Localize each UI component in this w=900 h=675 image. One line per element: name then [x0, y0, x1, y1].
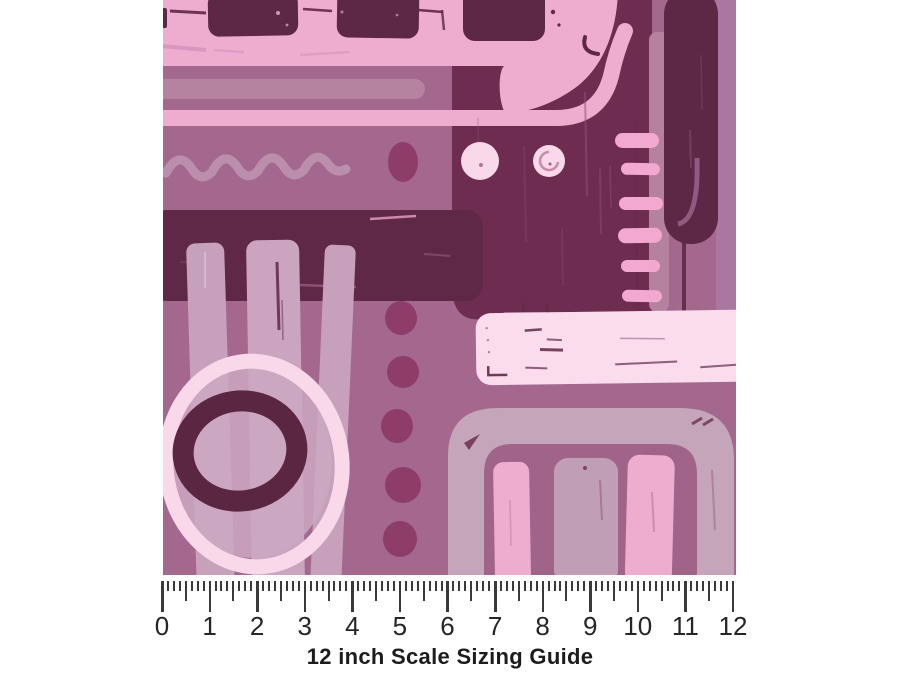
- right-edge-strip: [716, 0, 736, 312]
- ruler-tick: [310, 581, 312, 591]
- ruler-tick: [262, 581, 264, 591]
- ruler-tick: [399, 581, 402, 612]
- ruler-tick: [363, 581, 365, 591]
- ruler-tick: [643, 581, 645, 591]
- ruler-tick: [637, 581, 640, 612]
- ruler-tick: [631, 581, 633, 591]
- ruler-tick: [667, 581, 669, 591]
- ruler-tick: [405, 581, 407, 591]
- ruler-tick: [375, 581, 377, 601]
- ruler-number: 3: [298, 612, 312, 641]
- ruler-tick: [274, 581, 276, 591]
- ruler-tick: [530, 581, 532, 591]
- ruler-number: 1: [202, 612, 216, 641]
- ruler-tick: [536, 581, 538, 591]
- ruler-tick: [464, 581, 466, 591]
- ruler-number: 8: [535, 612, 549, 641]
- ruler-tick: [684, 581, 687, 612]
- ruler-tick: [732, 581, 735, 612]
- ruler-tick: [500, 581, 502, 591]
- ruler-number: 11: [672, 612, 699, 641]
- capsule-stroke: [163, 79, 425, 99]
- ruler-tick: [387, 581, 389, 591]
- ruler-tick: [696, 581, 698, 591]
- ruler-tick: [429, 581, 431, 591]
- dark-circle-top: [388, 142, 418, 182]
- ruler-tick: [672, 581, 674, 591]
- ruler-tick: [452, 581, 454, 591]
- ruler-tick: [548, 581, 550, 591]
- ruler-number: 0: [155, 612, 169, 641]
- ruler-tick: [470, 581, 472, 601]
- ruler-tick: [333, 581, 335, 591]
- arch-figure: [448, 408, 734, 575]
- ruler-tick: [417, 581, 419, 591]
- ruler-tick: [191, 581, 193, 591]
- ruler-tick: [292, 581, 294, 591]
- ruler-tick: [506, 581, 508, 591]
- ruler-number: 4: [345, 612, 359, 641]
- ruler-tick: [649, 581, 651, 591]
- ruler-tick: [607, 581, 609, 591]
- ruler-number: 6: [440, 612, 454, 641]
- ruler-tick: [304, 581, 307, 612]
- ruler-tick: [209, 581, 212, 612]
- ruler-tick: [351, 581, 354, 612]
- ruler: 0123456789101112: [162, 581, 733, 641]
- ruler-tick: [316, 581, 318, 591]
- ruler-tick: [512, 581, 514, 591]
- ruler-tick: [197, 581, 199, 591]
- ruler-tick: [250, 581, 252, 591]
- ruler-tick: [339, 581, 341, 591]
- ruler-tick: [565, 581, 567, 601]
- ruler-number: 2: [250, 612, 264, 641]
- sizing-guide-title: 12 inch Scale Sizing Guide: [0, 645, 900, 669]
- ruler-tick: [411, 581, 413, 591]
- sizing-guide-image: 0123456789101112 12 inch Scale Sizing Gu…: [0, 0, 900, 675]
- ruler-tick: [583, 581, 585, 591]
- ruler-tick: [554, 581, 556, 591]
- ruler-tick: [494, 581, 497, 612]
- ruler-tick: [369, 581, 371, 591]
- ruler-tick: [232, 581, 234, 601]
- ruler-tick: [322, 581, 324, 591]
- ruler-tick: [518, 581, 520, 601]
- ruler-tick: [625, 581, 627, 591]
- light-pink-bar: [475, 309, 736, 385]
- ruler-tick: [595, 581, 597, 591]
- ruler-tick: [173, 581, 175, 591]
- ruler-tick: [179, 581, 181, 591]
- ruler-tick: [577, 581, 579, 591]
- ruler-tick: [619, 581, 621, 591]
- ruler-tick: [720, 581, 722, 591]
- ruler-tick: [446, 581, 449, 612]
- ruler-tick: [458, 581, 460, 591]
- ruler-number: 5: [393, 612, 407, 641]
- ruler-tick: [220, 581, 222, 591]
- ruler-tick: [268, 581, 270, 591]
- ruler-tick: [524, 581, 526, 591]
- ruler-tick: [571, 581, 573, 591]
- ruler-tick: [601, 581, 603, 591]
- ruler-number: 7: [488, 612, 502, 641]
- ruler-tick: [542, 581, 545, 612]
- ruler-tick: [488, 581, 490, 591]
- ruler-tick: [244, 581, 246, 591]
- ruler-tick: [708, 581, 710, 601]
- pattern-swatch: [163, 0, 736, 575]
- ruler-tick: [226, 581, 228, 591]
- ruler-tick: [167, 581, 169, 591]
- ruler-tick: [655, 581, 657, 591]
- ruler-tick: [441, 581, 443, 591]
- ruler-tick: [435, 581, 437, 591]
- pattern-swatch-graphic: [163, 0, 736, 575]
- ruler-tick: [345, 581, 347, 591]
- ruler-number: 9: [583, 612, 597, 641]
- ruler-tick: [702, 581, 704, 591]
- ruler-tick: [613, 581, 615, 601]
- ruler-tick: [393, 581, 395, 591]
- ruler-tick: [381, 581, 383, 591]
- ruler-tick: [161, 581, 164, 612]
- ruler-tick: [357, 581, 359, 591]
- ruler-tick: [476, 581, 478, 591]
- ruler-tick: [726, 581, 728, 591]
- ruler-tick: [714, 581, 716, 591]
- ruler-tick: [203, 581, 205, 591]
- ruler-tick: [589, 581, 592, 612]
- ruler-tick: [185, 581, 187, 601]
- ruler-number: 10: [623, 612, 652, 641]
- ruler-number: 12: [718, 612, 747, 641]
- ruler-tick: [661, 581, 663, 601]
- ruler-tick: [678, 581, 680, 591]
- ruler-tick: [482, 581, 484, 591]
- ruler-tick: [286, 581, 288, 591]
- ruler-tick: [215, 581, 217, 591]
- ruler-tick: [423, 581, 425, 601]
- ruler-tick: [238, 581, 240, 591]
- ruler-tick: [328, 581, 330, 601]
- ruler-tick: [690, 581, 692, 591]
- ruler-tick: [256, 581, 259, 612]
- ruler-tick: [298, 581, 300, 591]
- ruler-tick: [280, 581, 282, 601]
- ruler-tick: [559, 581, 561, 591]
